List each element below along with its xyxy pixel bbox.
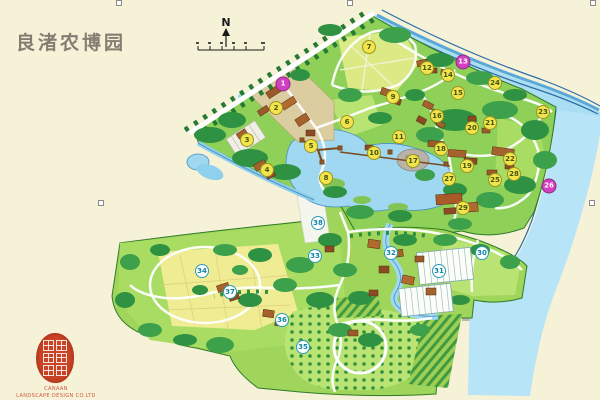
map-marker-27[interactable]: 27: [443, 173, 455, 185]
map-marker-30[interactable]: 30: [476, 247, 488, 259]
map-marker-37[interactable]: 37: [224, 286, 236, 298]
map-marker-23[interactable]: 23: [537, 106, 549, 118]
company-name: CANAAN LANDSCAPE DESIGN CO.LTD: [10, 386, 102, 400]
map-marker-15[interactable]: 15: [452, 87, 464, 99]
map-marker-6[interactable]: 6: [341, 116, 353, 128]
map-marker-10[interactable]: 10: [368, 147, 380, 159]
selection-handle-right[interactable]: [589, 200, 595, 206]
map-marker-32[interactable]: 32: [385, 247, 397, 259]
selection-handle-top-2[interactable]: [347, 0, 353, 6]
company-line-2: LANDSCAPE DESIGN CO.LTD: [10, 393, 102, 400]
map-marker-17[interactable]: 17: [407, 155, 419, 167]
map-marker-2[interactable]: 2: [270, 102, 282, 114]
seal-glyphs: [43, 340, 67, 376]
company-seal-logo: [36, 333, 74, 383]
document-canvas: N 良渚农博园 12345678910111213141516171819202…: [0, 0, 600, 400]
map-marker-3[interactable]: 3: [241, 134, 253, 146]
map-marker-9[interactable]: 9: [387, 91, 399, 103]
north-label: N: [221, 16, 230, 29]
map-marker-12[interactable]: 12: [421, 62, 433, 74]
site-plan-map[interactable]: N: [0, 0, 600, 400]
map-marker-35[interactable]: 35: [297, 341, 309, 353]
map-marker-11[interactable]: 11: [393, 131, 405, 143]
map-marker-18[interactable]: 18: [435, 143, 447, 155]
company-line-1: CANAAN: [10, 386, 102, 393]
map-marker-26[interactable]: 26: [543, 180, 556, 193]
selection-handle-top-3[interactable]: [590, 0, 596, 6]
map-marker-33[interactable]: 33: [309, 250, 321, 262]
map-marker-21[interactable]: 21: [484, 117, 496, 129]
map-marker-4[interactable]: 4: [261, 164, 273, 176]
selection-handle-left[interactable]: [98, 200, 104, 206]
scale-bar: [196, 42, 265, 50]
selection-handle-top-1[interactable]: [116, 0, 122, 6]
map-marker-24[interactable]: 24: [489, 77, 501, 89]
map-marker-16[interactable]: 16: [431, 110, 443, 122]
map-marker-38[interactable]: 38: [312, 217, 324, 229]
map-marker-13[interactable]: 13: [457, 56, 470, 69]
map-marker-14[interactable]: 14: [442, 69, 454, 81]
map-marker-36[interactable]: 36: [276, 314, 288, 326]
map-marker-5[interactable]: 5: [305, 140, 317, 152]
map-marker-7[interactable]: 7: [363, 41, 375, 53]
map-marker-1[interactable]: 1: [277, 78, 290, 91]
map-marker-34[interactable]: 34: [196, 265, 208, 277]
map-marker-8[interactable]: 8: [320, 172, 332, 184]
map-marker-25[interactable]: 25: [489, 174, 501, 186]
page-title: 良渚农博园: [16, 28, 126, 55]
map-marker-31[interactable]: 31: [433, 265, 445, 277]
map-marker-19[interactable]: 19: [461, 160, 473, 172]
map-marker-22[interactable]: 22: [504, 153, 516, 165]
map-marker-29[interactable]: 29: [457, 202, 469, 214]
map-marker-20[interactable]: 20: [466, 122, 478, 134]
map-marker-28[interactable]: 28: [508, 168, 520, 180]
